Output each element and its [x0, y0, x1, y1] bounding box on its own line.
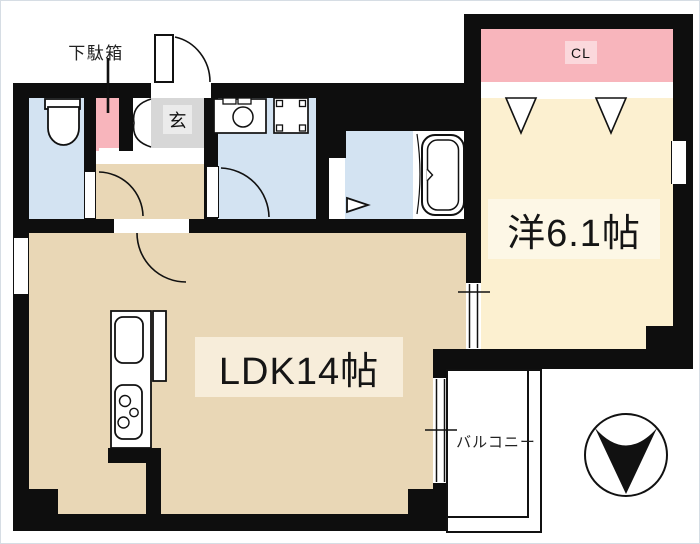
wall [346, 98, 464, 131]
ldk-label-band: LDK14帖 [195, 337, 403, 397]
ldk-room [29, 233, 466, 353]
hallway [96, 164, 204, 219]
western-room-label-band: 洋6.1帖 [488, 199, 660, 259]
closet-opening [509, 82, 624, 99]
wall [13, 219, 466, 233]
wall [464, 14, 481, 233]
balcony-label: バルコニー [451, 431, 541, 452]
bathroom-pocket-door [329, 158, 345, 214]
wall [13, 514, 448, 531]
closet-label-box: CL [565, 41, 597, 64]
entrance-opening [151, 83, 211, 98]
window-left [13, 238, 29, 294]
western-room-label: 洋6.1帖 [507, 202, 641, 257]
shoe-cabinet [96, 98, 119, 151]
ldk-label: LDK14帖 [219, 340, 379, 395]
bifold-niche [133, 98, 151, 148]
wall [433, 349, 689, 369]
toilet-door-leaf [84, 171, 96, 219]
wall [673, 29, 693, 369]
ldk-door-opening [114, 219, 189, 233]
genkan-step [99, 148, 204, 164]
floorplan: 下駄箱 玄 CL 洋6.1帖 LDK14帖 バルコニー [0, 0, 700, 544]
shoe-cabinet-label: 下駄箱 [61, 39, 131, 64]
entrance-door-leaf [154, 34, 174, 83]
wall [464, 14, 693, 29]
bathtub-zone [413, 131, 464, 219]
genkan-label: 玄 [169, 107, 187, 133]
wall [119, 98, 133, 151]
genkan-label-box: 玄 [163, 105, 192, 134]
wall [646, 326, 689, 351]
wall [13, 83, 466, 98]
washroom-door-leaf [206, 166, 219, 218]
compass-north-arrow-icon [585, 414, 667, 496]
toilet-room [29, 98, 84, 219]
window-right [671, 141, 687, 184]
ldk-room [58, 489, 408, 514]
wall [19, 489, 58, 516]
wall [108, 448, 161, 463]
washroom [218, 98, 316, 219]
entrance-door-arc [175, 37, 210, 82]
wall [84, 98, 96, 173]
wall [316, 158, 329, 219]
bathroom [345, 131, 413, 219]
wall [316, 98, 346, 158]
wall [13, 83, 29, 531]
sliding-door-ldk-western [466, 283, 481, 349]
wall [146, 463, 161, 516]
closet-label: CL [571, 45, 591, 61]
